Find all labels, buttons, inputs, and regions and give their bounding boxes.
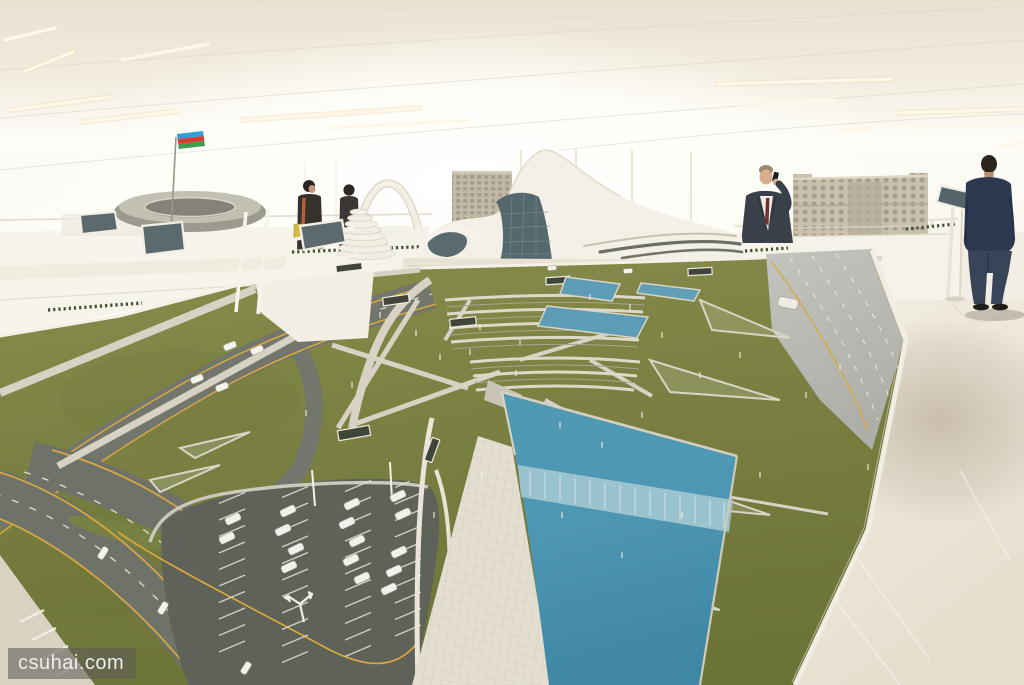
model-car	[623, 269, 632, 274]
site-model	[0, 249, 906, 685]
scene	[0, 0, 1024, 685]
photo-architectural-model-hall: csuhai.com	[0, 0, 1024, 685]
watermark: csuhai.com	[8, 648, 136, 679]
watermark-text: csuhai.com	[18, 652, 124, 674]
person-shadow	[965, 309, 1024, 321]
model-car	[547, 265, 556, 270]
